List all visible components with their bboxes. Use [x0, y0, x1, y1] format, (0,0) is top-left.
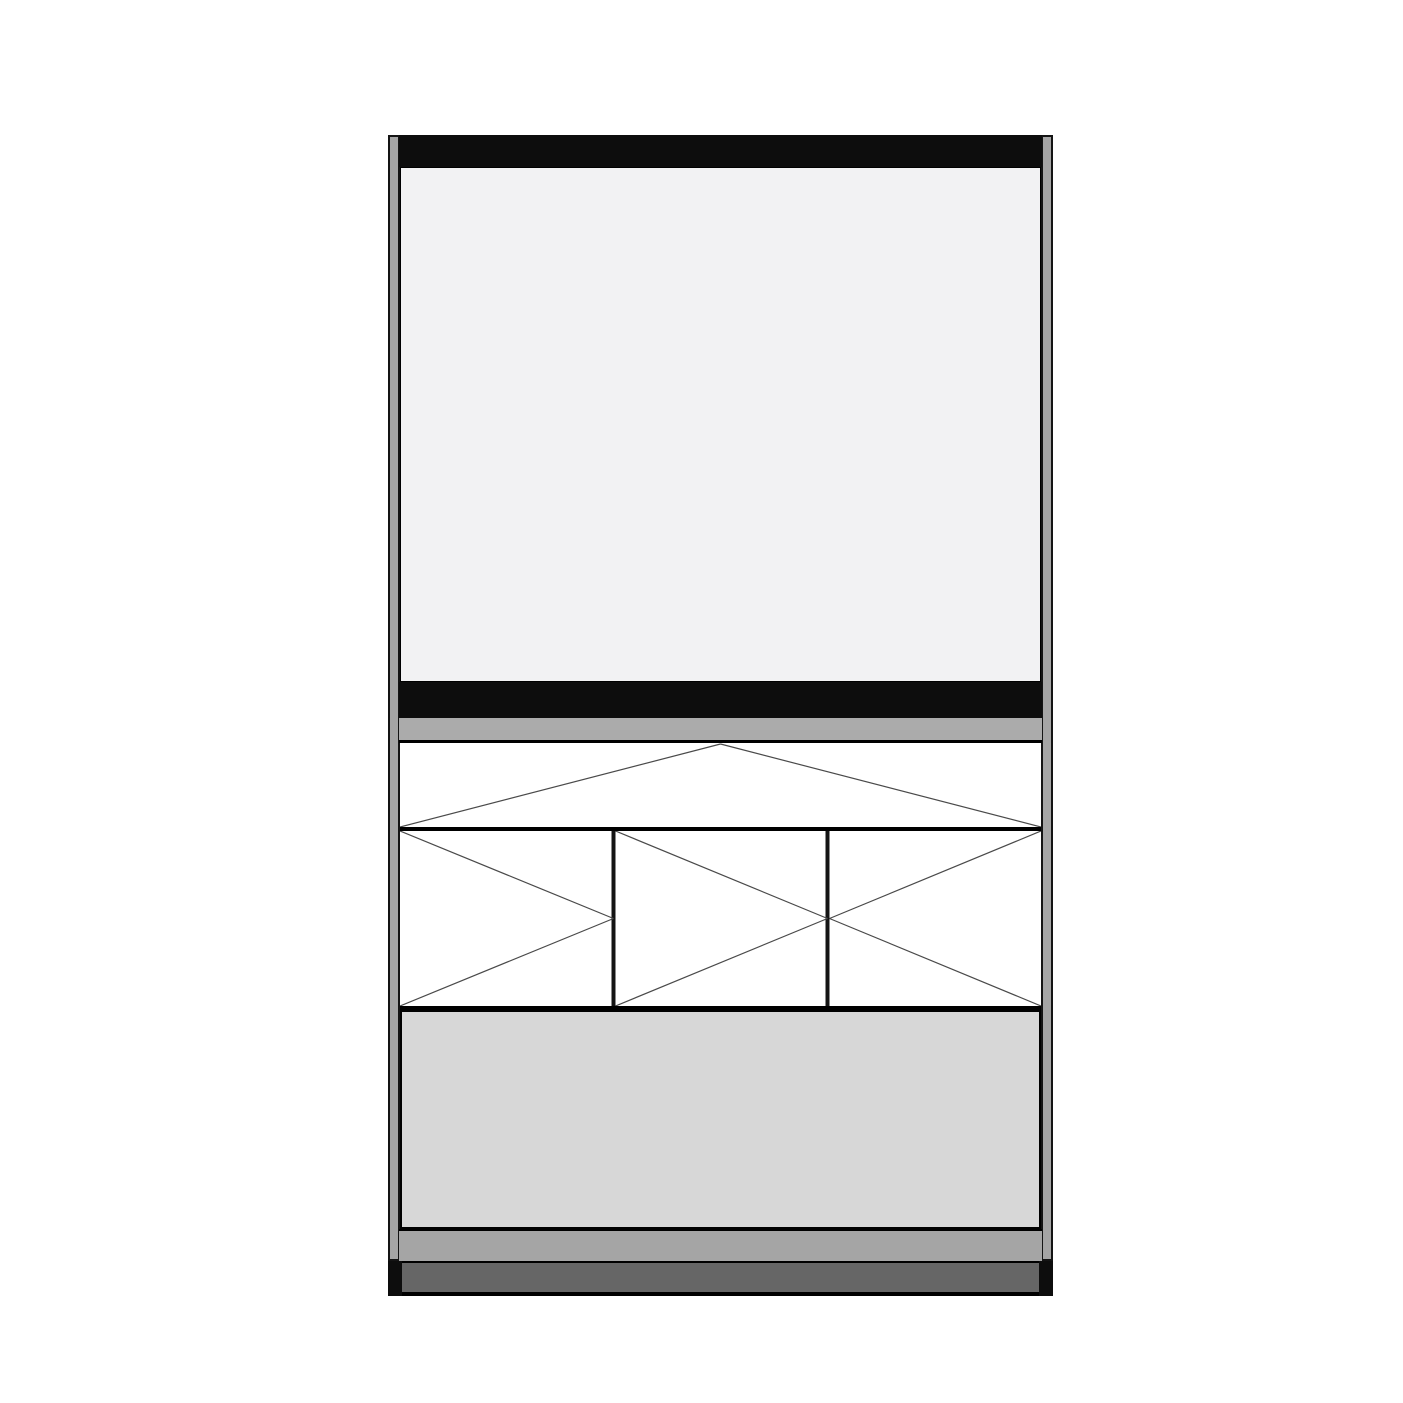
shelf-strip [399, 718, 1042, 743]
right-foot [1039, 1261, 1053, 1296]
doors-band-graphics [400, 831, 1041, 1006]
top-cornice-bar [399, 135, 1042, 167]
flap-swing-line-right [721, 744, 1042, 827]
cabinet-elevation [388, 135, 1053, 1296]
right-door-swing-line-bottom [830, 919, 1042, 1007]
flap-swing-line-left [400, 744, 721, 827]
right-door-swing-line-top [830, 831, 1042, 919]
plinth-recess [402, 1263, 1039, 1296]
middle-door-swing-line-top [616, 831, 828, 919]
left-door-swing-line-bottom [400, 919, 614, 1007]
middle-door-swing-line-bottom [616, 919, 828, 1007]
doors-band [400, 831, 1041, 1010]
flap-door-band [400, 743, 1041, 831]
upper-door-panel [400, 167, 1041, 682]
lower-panel [400, 1010, 1041, 1229]
flap-swing-symbol-icon [400, 743, 1041, 827]
right-side-rail-outline [1041, 135, 1053, 1261]
bottom-strip [399, 1229, 1042, 1263]
drawing-canvas [0, 0, 1403, 1403]
left-door-swing-line-top [400, 831, 614, 919]
left-foot [388, 1261, 402, 1296]
mid-dark-bar [399, 682, 1042, 718]
